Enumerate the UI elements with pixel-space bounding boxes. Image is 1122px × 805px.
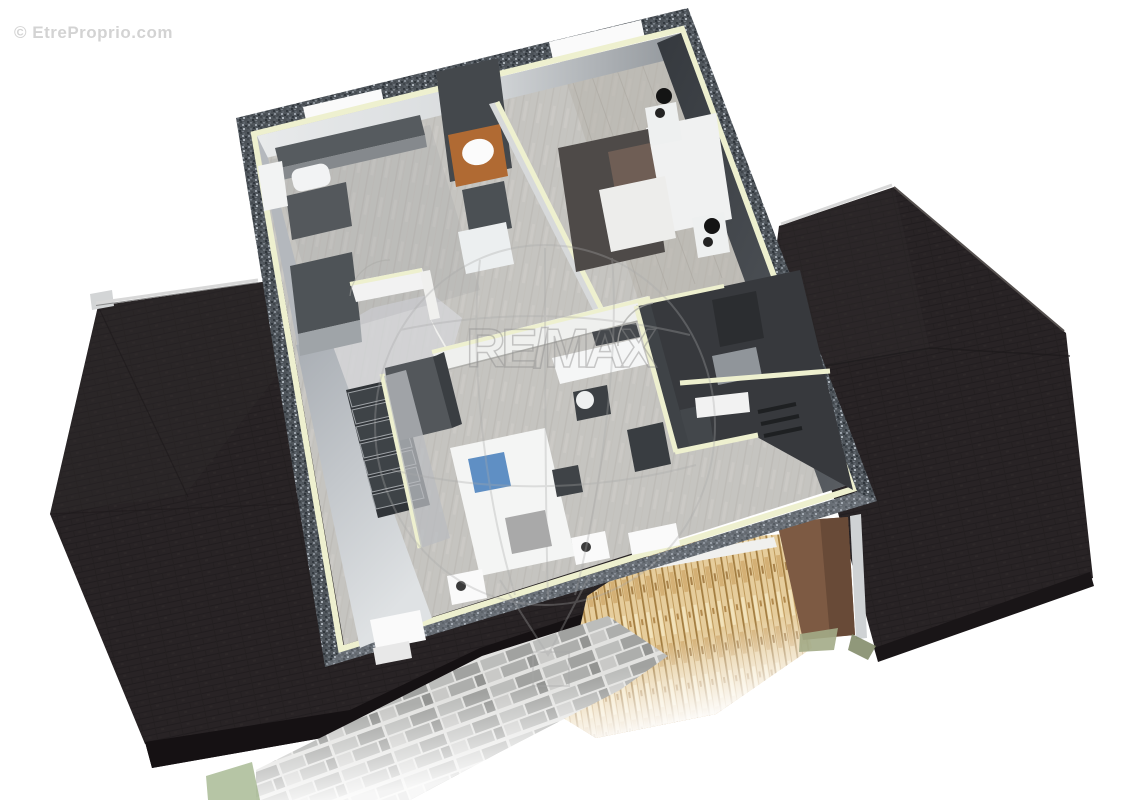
svg-text:© EtreProprio.com: © EtreProprio.com [14,23,173,42]
svg-text:RE/MAX: RE/MAX [466,317,658,379]
